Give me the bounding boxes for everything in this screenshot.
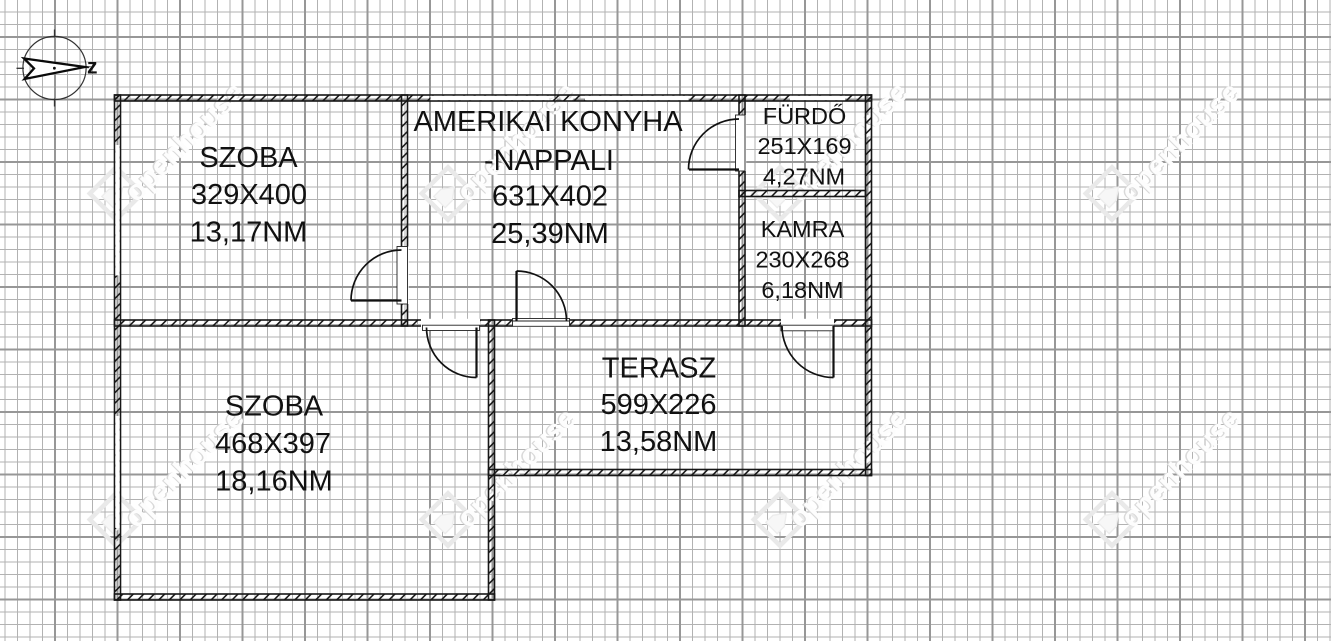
svg-text:25,39NM: 25,39NM	[491, 218, 609, 250]
svg-text:599X226: 599X226	[600, 389, 716, 421]
svg-text:FÜRDŐ: FÜRDŐ	[763, 103, 847, 129]
svg-text:-NAPPALI: -NAPPALI	[484, 145, 614, 177]
svg-text:AMERIKAI KONYHA: AMERIKAI KONYHA	[413, 106, 683, 138]
svg-text:SZOBA: SZOBA	[199, 142, 298, 174]
svg-text:SZOBA: SZOBA	[225, 391, 324, 423]
svg-text:13,58NM: 13,58NM	[600, 426, 718, 458]
svg-text:13,17NM: 13,17NM	[190, 217, 308, 249]
svg-text:6,18NM: 6,18NM	[761, 277, 843, 303]
svg-text:TERASZ: TERASZ	[602, 353, 716, 385]
svg-text:631X402: 631X402	[492, 181, 608, 213]
svg-text:KAMRA: KAMRA	[761, 216, 845, 242]
svg-text:4,27NM: 4,27NM	[763, 164, 845, 190]
svg-text:18,16NM: 18,16NM	[215, 466, 333, 498]
svg-text:329X400: 329X400	[191, 179, 307, 211]
svg-text:z: z	[87, 56, 98, 79]
svg-text:468X397: 468X397	[215, 428, 331, 460]
svg-text:230X268: 230X268	[755, 247, 849, 273]
svg-text:251X169: 251X169	[757, 133, 851, 159]
